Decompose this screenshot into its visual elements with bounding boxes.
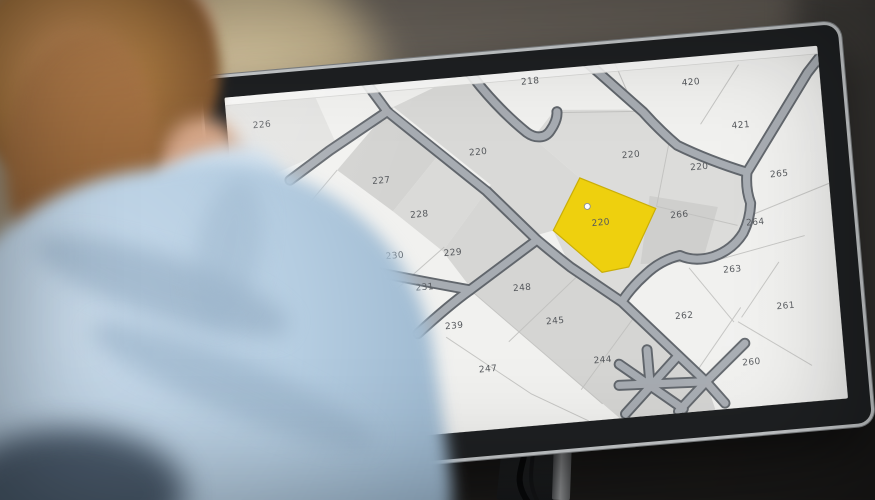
parcel-label: 220 xyxy=(690,162,709,174)
cadastral-map[interactable]: 2262272282292302312392472482452442184204… xyxy=(224,46,848,451)
parcel-label: 239 xyxy=(445,321,464,333)
scene-root: 2262272282292302312392472482452442184204… xyxy=(0,0,875,500)
parcel-label: 230 xyxy=(385,251,404,263)
parcel-label: 229 xyxy=(443,248,462,260)
parcel-label: 245 xyxy=(546,316,565,328)
parcel-label: 260 xyxy=(742,357,761,369)
monitor: 2262272282292302312392472482452442184204… xyxy=(201,24,872,478)
parcel-label: 421 xyxy=(731,120,750,132)
parcel-label: 220 xyxy=(469,147,488,159)
parcel-label: 231 xyxy=(415,282,434,294)
parcel-label: 228 xyxy=(410,209,429,221)
cursor-dot xyxy=(584,203,591,210)
parcel-label: 220 xyxy=(591,218,610,230)
parcel-label: 227 xyxy=(372,175,391,187)
parcel-label: 262 xyxy=(675,311,694,323)
parcel-label: 226 xyxy=(252,120,271,132)
parcel-label: 244 xyxy=(593,355,612,367)
parcel-label: 265 xyxy=(770,169,789,181)
parcel-label: 248 xyxy=(513,283,532,295)
parcel-label: 220 xyxy=(621,150,640,162)
parcel-label: 263 xyxy=(723,264,742,276)
parcel-label: 218 xyxy=(521,76,540,88)
parcel-label: 247 xyxy=(479,364,498,376)
map-viewport[interactable]: 2262272282292302312392472482452442184204… xyxy=(224,46,848,451)
parcel-label: 261 xyxy=(776,301,795,313)
parcel-label: 420 xyxy=(681,77,700,89)
parcel-label: 264 xyxy=(746,217,765,229)
parcel-label: 266 xyxy=(670,210,689,222)
